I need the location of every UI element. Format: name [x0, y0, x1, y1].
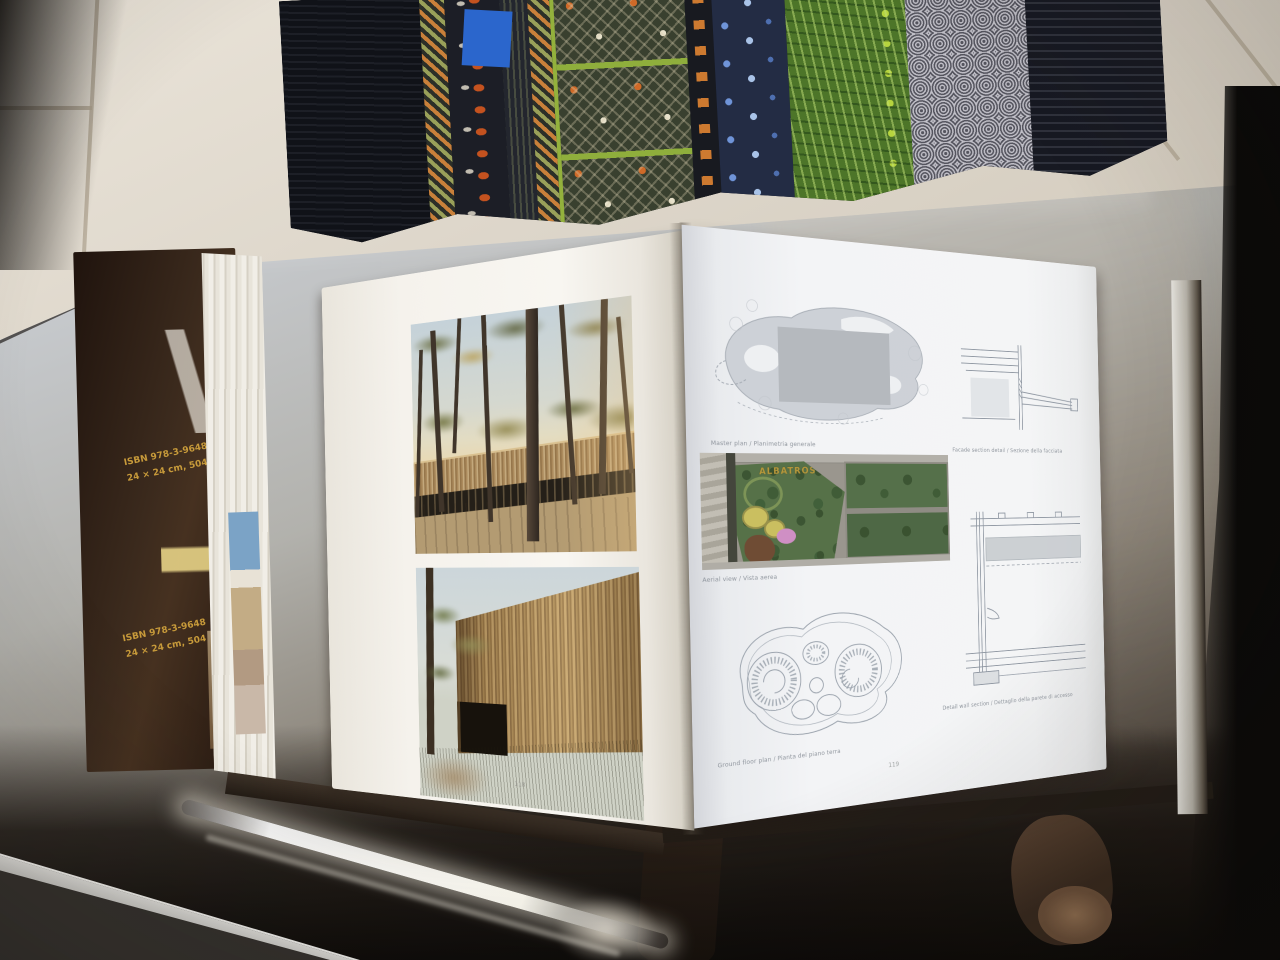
textile-blue-patch: [462, 9, 513, 67]
sand-patch: [420, 753, 490, 803]
pine-canopy: [416, 592, 509, 712]
caption-site-plan: Master plan / Planimetria generale: [711, 439, 816, 448]
open-book[interactable]: 118 Master plan / Planimetria generale: [220, 212, 1218, 847]
book-right-page[interactable]: Master plan / Planimetria generale ALBAT…: [682, 225, 1107, 829]
book-left-page[interactable]: 118: [322, 231, 695, 831]
isbn-text-block: ISBN 978-3-9648 24 × 24 cm, 504 p.: [121, 613, 221, 664]
aerial-photo: ALBATROS: [700, 453, 950, 570]
page-number-left: 118: [514, 780, 525, 788]
aerial-golf-park: ALBATROS: [735, 461, 846, 567]
aerial-field: [846, 463, 948, 508]
albatros-label: ALBATROS: [759, 466, 817, 478]
aerial-field-blocks: [844, 462, 950, 565]
textile-plain-band: [279, 0, 432, 259]
site-plan-drawing: [707, 283, 939, 437]
caption-detail-top: Facade section detail / Sezione della fa…: [952, 446, 1062, 454]
section-detail-drawing-bottom: [963, 503, 1089, 695]
aerial-pink-area: [776, 528, 796, 544]
caption-detail-bottom: Detail wall section / Dettaglio della pa…: [942, 691, 1072, 712]
book-right-page-block: [1171, 280, 1208, 814]
tree-trunk: [526, 308, 540, 541]
page-number-right: 119: [888, 760, 899, 769]
ground-floor-plan-drawing: [714, 593, 916, 756]
photo-bamboo-facade: [416, 567, 644, 821]
caption-aerial: Aerial view / Vista aerea: [702, 573, 777, 584]
aerial-field: [847, 512, 949, 557]
photo-pine-forest: [411, 296, 637, 554]
foot-toes: [1038, 886, 1112, 944]
warm-light-overlay: [553, 296, 636, 553]
corner-shadow: [0, 0, 130, 270]
section-detail-drawing-top: [955, 336, 1083, 443]
photo-scene: ISBN 978-3-9648 24 × 24 cm, 504 p. ISBN …: [0, 0, 1280, 960]
